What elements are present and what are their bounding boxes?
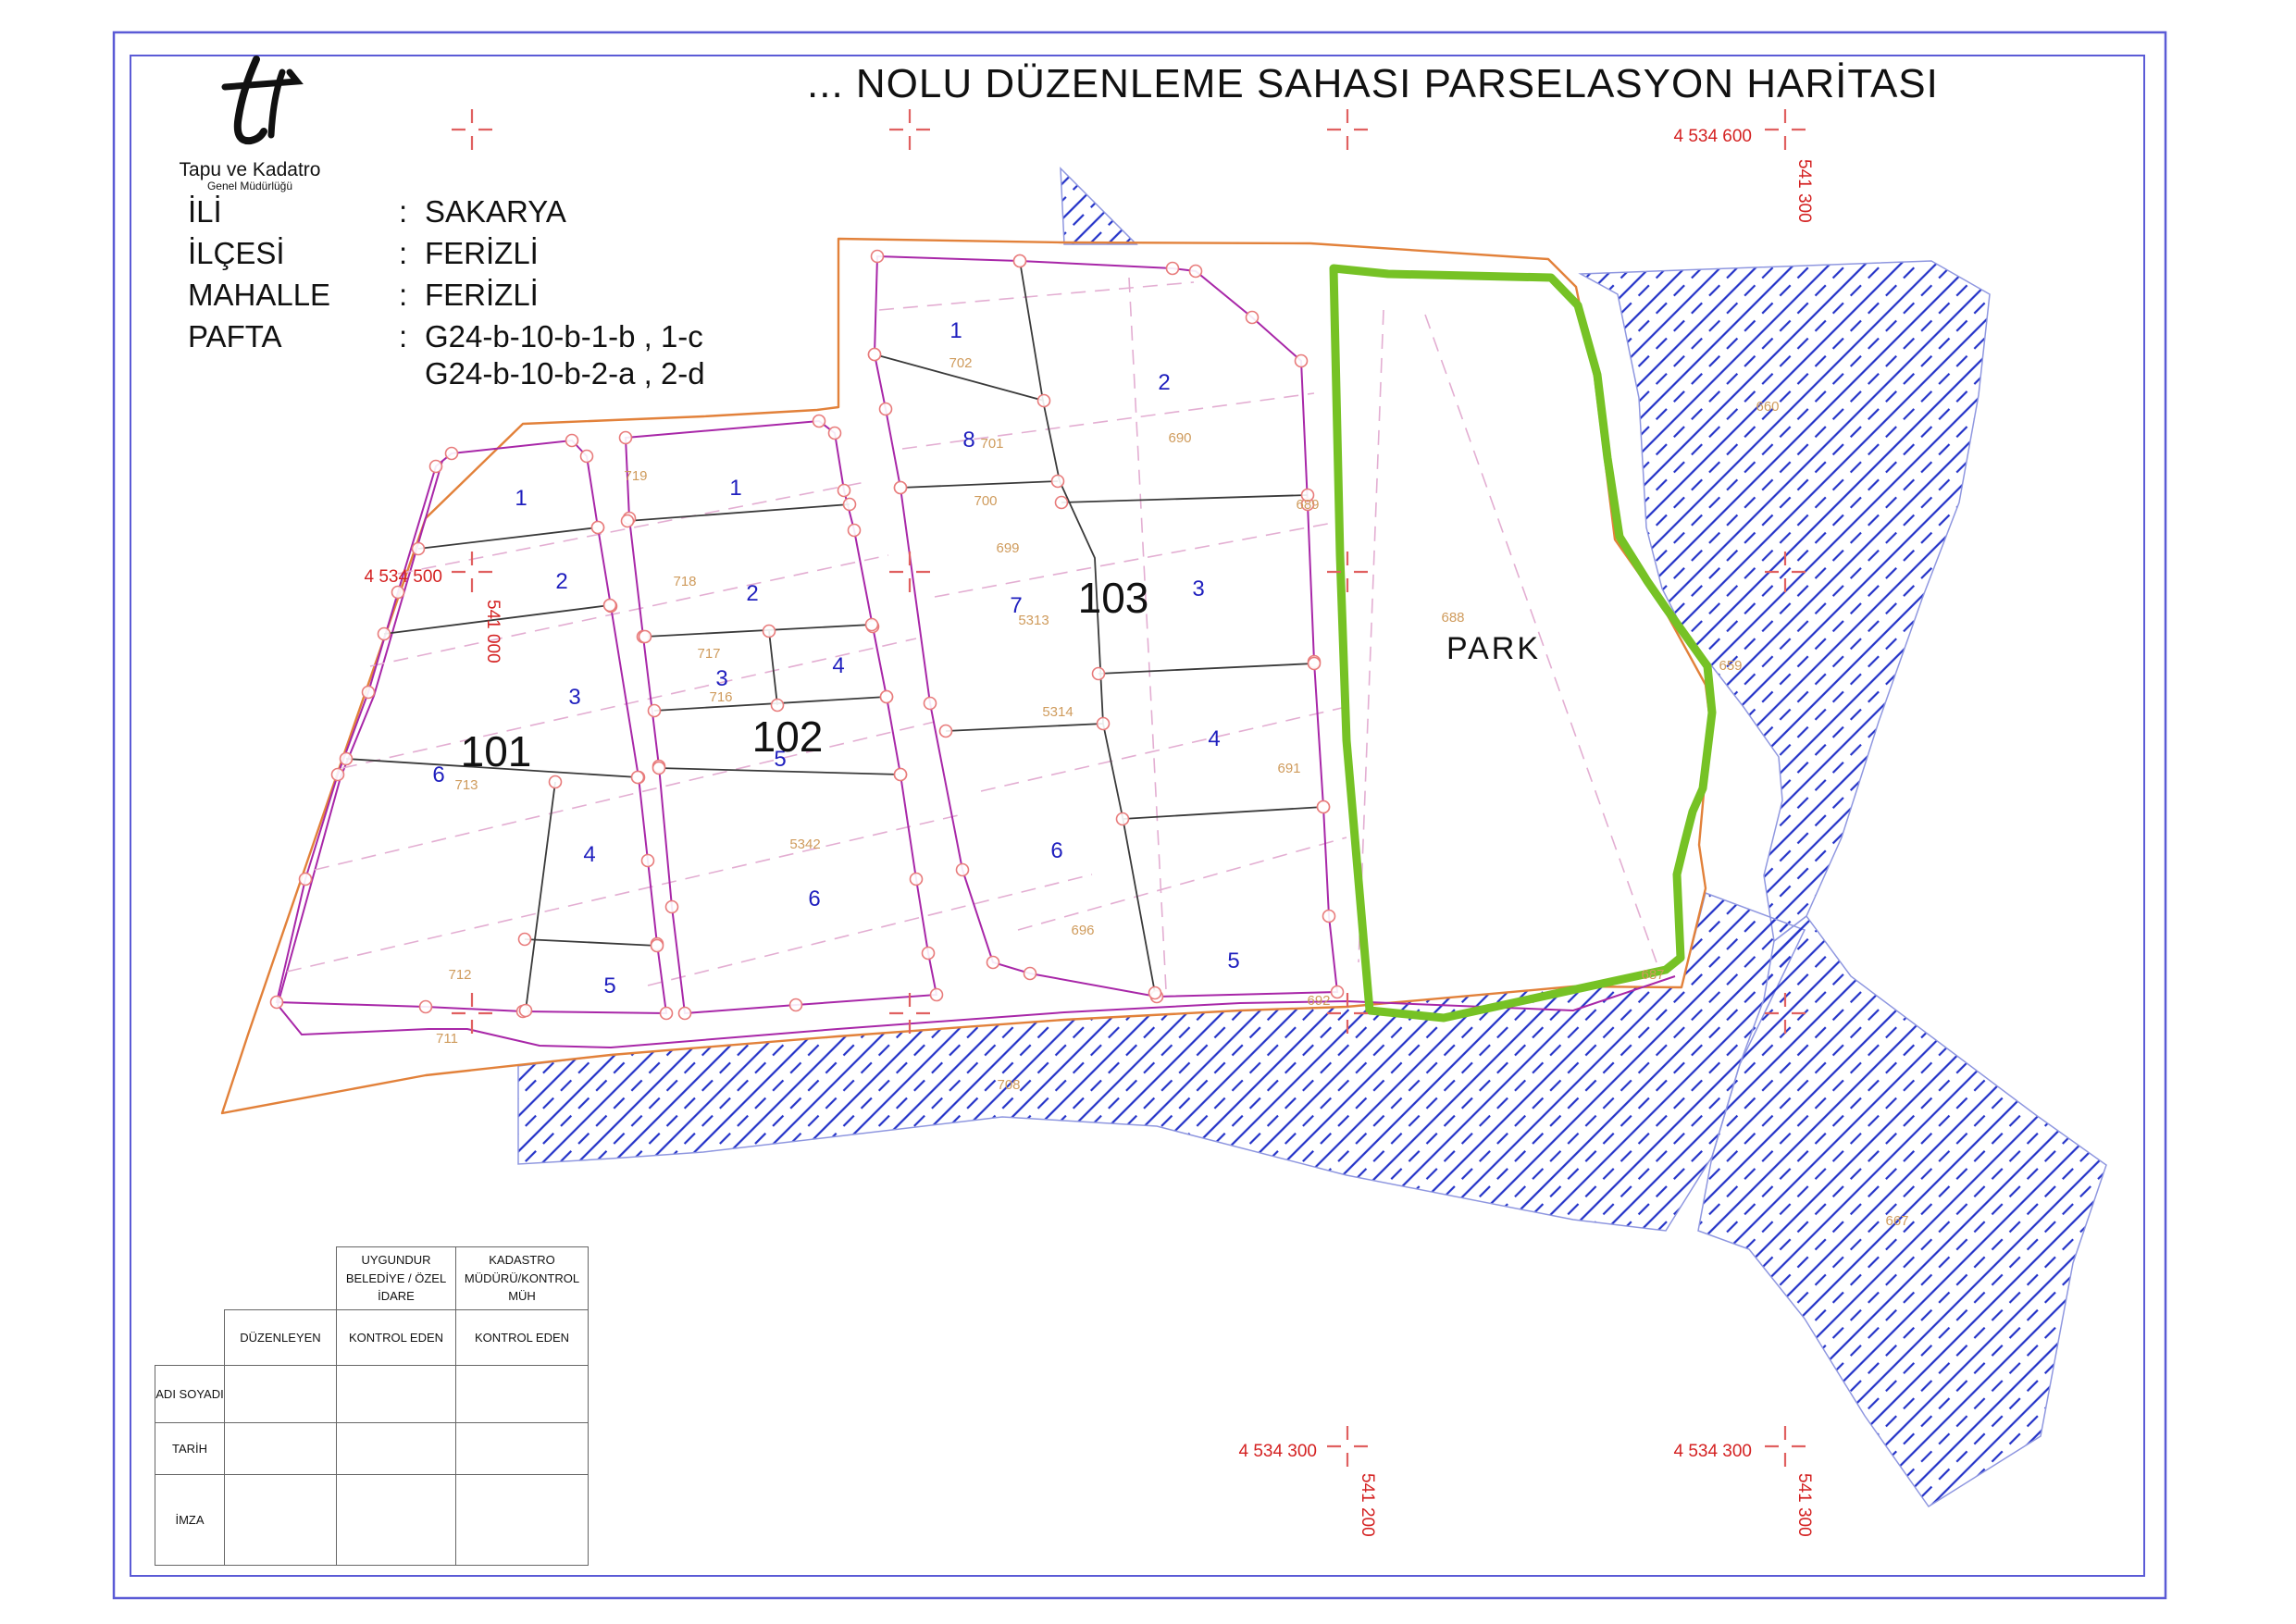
parcel-vertex-marker: [923, 948, 935, 960]
parcel-vertex-marker: [379, 628, 391, 640]
table-cell-empty: [336, 1365, 456, 1423]
parcel-vertex-marker: [1052, 476, 1064, 488]
info-separator: :: [399, 319, 425, 354]
old-parcel-number-label: 700: [974, 493, 997, 509]
block-number-label: 103: [1078, 574, 1149, 622]
table-header-kontrol-eden-1: KONTROL EDEN: [336, 1309, 456, 1366]
block-103-parcel-line: [1098, 663, 1314, 674]
parcel-vertex-marker: [592, 522, 604, 534]
info-value: SAKARYA: [425, 194, 566, 229]
old-cadastre-dashed-line: [981, 708, 1342, 791]
parcel-vertex-marker: [632, 772, 644, 784]
info-separator: :: [399, 236, 425, 271]
parcel-number-label: 5: [1227, 948, 1239, 973]
parcel-number-label: 2: [746, 581, 758, 606]
grid-cross-marker: [889, 993, 930, 1034]
old-parcel-number-label: 689: [1296, 497, 1319, 513]
block-number-label: 101: [461, 727, 532, 775]
grid-coordinate-label: 541 200: [1358, 1473, 1377, 1537]
parcel-vertex-marker: [649, 705, 661, 717]
parcel-number-label: 4: [1208, 726, 1220, 751]
table-cell-empty: [224, 1422, 337, 1475]
block-102-parcel-line: [645, 625, 872, 637]
table-header-kadastro: KADASTRO MÜDÜRÜ/KONTROL MÜH: [455, 1246, 589, 1310]
old-parcel-number-label: 708: [997, 1077, 1020, 1093]
park-area-label: PARK: [1446, 631, 1541, 666]
parcel-number-label: 4: [583, 842, 595, 867]
parcel-vertex-marker: [271, 997, 283, 1009]
grid-cross-marker: [1765, 1426, 1806, 1467]
table-header-text: UYGUNDUR: [361, 1251, 430, 1270]
parcel-vertex-marker: [763, 626, 776, 638]
parcel-vertex-marker: [679, 1008, 691, 1020]
parcel-vertex-marker: [957, 864, 969, 876]
old-parcel-number-label: 687: [1641, 967, 1664, 983]
old-parcel-number-label: 699: [996, 540, 1019, 556]
old-parcel-number-label: 717: [697, 646, 720, 662]
old-cadastre-dashed-line: [315, 722, 935, 870]
parcel-vertex-marker: [895, 482, 907, 494]
hatch-area-northeast: [1581, 261, 1990, 941]
table-header-text: BELEDİYE / ÖZEL İDARE: [337, 1270, 455, 1306]
parcel-number-label: 1: [949, 318, 962, 343]
info-label: İLÇESİ: [188, 236, 399, 271]
info-value: FERİZLİ: [425, 278, 539, 312]
parcel-vertex-marker: [1149, 987, 1161, 999]
parcel-vertex-marker: [332, 769, 344, 781]
info-row-sheet: PAFTA:G24-b-10-b-1-b , 1-c: [188, 319, 703, 354]
old-cadastre-dashed-line: [287, 814, 962, 972]
parcel-vertex-marker: [931, 989, 943, 1001]
block-103-parcel-line: [1123, 807, 1323, 819]
parcel-vertex-marker: [519, 934, 531, 946]
info-label: İLİ: [188, 194, 399, 229]
grid-coordinate-label: 4 534 300: [1238, 1442, 1317, 1461]
old-parcel-number-label: 711: [436, 1031, 458, 1047]
old-parcel-number-label: 690: [1168, 430, 1191, 446]
parcel-number-label: 1: [515, 486, 527, 511]
old-cadastre-dashed-line: [879, 282, 1194, 310]
parcel-number-label: 4: [832, 653, 844, 678]
parcel-vertex-marker: [341, 753, 353, 765]
parcel-vertex-marker: [639, 631, 652, 643]
parcel-vertex-marker: [813, 415, 825, 428]
info-value: G24-b-10-b-1-b , 1-c: [425, 319, 703, 353]
parcel-vertex-marker: [829, 428, 841, 440]
old-parcel-number-label: 716: [709, 689, 732, 705]
info-value: FERİZLİ: [425, 236, 539, 270]
old-parcel-number-label: 667: [1885, 1213, 1908, 1229]
old-parcel-number-label: 718: [673, 574, 696, 589]
parcel-number-label: 2: [1158, 370, 1170, 395]
old-parcel-number-label: 696: [1071, 923, 1094, 938]
block-103-outline: [875, 256, 1337, 997]
parcel-vertex-marker: [581, 451, 593, 463]
parcel-vertex-marker: [1309, 658, 1321, 670]
map-sheet: 1236457137127111011234567187177165342102…: [0, 0, 2296, 1624]
parcel-vertex-marker: [1098, 718, 1110, 730]
table-cell-empty: [455, 1474, 589, 1566]
parcel-number-label: 2: [555, 569, 567, 594]
parcel-vertex-marker: [772, 700, 784, 712]
parcel-vertex-marker: [1056, 497, 1068, 509]
parcel-vertex-marker: [790, 999, 802, 1011]
parcel-number-label: 8: [962, 428, 974, 452]
old-cadastre-dashed-line: [1359, 310, 1384, 962]
old-parcel-number-label: 692: [1307, 993, 1330, 1009]
block-102-parcel-line: [654, 697, 887, 711]
parcel-vertex-marker: [895, 769, 907, 781]
old-cadastre-dashed-line: [370, 555, 888, 666]
grid-coordinate-label: 541 000: [483, 600, 503, 663]
table-cell-empty: [224, 1474, 337, 1566]
parcel-vertex-marker: [1038, 395, 1050, 407]
info-row-district: İLÇESİ:FERİZLİ: [188, 236, 539, 271]
block-102-parcel-line: [769, 631, 777, 705]
grid-cross-marker: [1765, 109, 1806, 150]
table-cell-empty: [336, 1422, 456, 1475]
grid-cross-marker: [452, 552, 492, 592]
info-label: MAHALLE: [188, 278, 399, 313]
old-cadastre-dashed-line: [342, 638, 916, 768]
grid-coordinate-label: 541 300: [1794, 1473, 1814, 1537]
parcel-vertex-marker: [300, 874, 312, 886]
parcel-vertex-marker: [430, 461, 442, 473]
old-parcel-number-label: 691: [1277, 761, 1300, 776]
parcel-vertex-marker: [622, 515, 634, 527]
parcel-number-label: 1: [729, 476, 741, 501]
parcel-vertex-marker: [866, 619, 878, 631]
parcel-vertex-marker: [653, 762, 665, 775]
parcel-vertex-marker: [1093, 668, 1105, 680]
table-cell-empty: [336, 1474, 456, 1566]
logo-organization-name: Tapu ve Kadatro: [153, 159, 347, 181]
grid-cross-marker: [1327, 552, 1368, 592]
parcel-vertex-marker: [987, 957, 999, 969]
info-row-province: İLİ:SAKARYA: [188, 194, 566, 229]
grid-cross-marker: [889, 552, 930, 592]
parcel-vertex-marker: [520, 1005, 532, 1017]
table-header-text: MÜDÜRÜ/KONTROL MÜH: [456, 1270, 588, 1306]
old-cadastre-dashed-line: [1018, 837, 1347, 930]
old-parcel-number-label: 702: [949, 355, 972, 371]
parcel-vertex-marker: [652, 940, 664, 952]
block-103-parcel-line: [1061, 495, 1308, 502]
hatch-band-south: [518, 893, 1805, 1231]
block-number-label: 102: [752, 713, 824, 761]
table-header-uygundur: UYGUNDUR BELEDİYE / ÖZEL İDARE: [336, 1246, 456, 1310]
parcel-number-label: 3: [568, 685, 580, 710]
parcel-vertex-marker: [925, 698, 937, 710]
old-parcel-number-label: 719: [624, 468, 647, 484]
info-value: G24-b-10-b-2-a , 2-d: [425, 356, 705, 391]
grid-cross-marker: [452, 993, 492, 1034]
parcel-vertex-marker: [849, 525, 861, 537]
block-103-parcel-line: [900, 481, 1058, 488]
table-cell-empty: [224, 1365, 337, 1423]
block-103-parcel-line: [946, 724, 1103, 731]
table-row-label-imza: İMZA: [155, 1474, 225, 1566]
parcel-vertex-marker: [661, 1008, 673, 1020]
parcel-vertex-marker: [1024, 968, 1036, 980]
table-row-label-tarih: TARİH: [155, 1422, 225, 1475]
info-row-sheet-2: G24-b-10-b-2-a , 2-d: [188, 356, 705, 391]
parcel-vertex-marker: [1247, 312, 1259, 324]
parcel-vertex-marker: [880, 403, 892, 415]
old-parcel-number-label: 712: [448, 967, 471, 983]
parcel-vertex-marker: [838, 485, 850, 497]
parcel-vertex-marker: [666, 901, 678, 913]
parcel-number-label: 3: [715, 666, 727, 691]
info-separator: :: [399, 194, 425, 229]
parcel-vertex-marker: [881, 691, 893, 703]
parcel-vertex-marker: [566, 435, 578, 447]
parcel-vertex-marker: [1296, 355, 1308, 367]
grid-cross-marker: [452, 109, 492, 150]
parcel-vertex-marker: [911, 874, 923, 886]
old-parcel-number-label: 5314: [1042, 704, 1073, 720]
grid-coordinate-label: 541 300: [1794, 159, 1814, 223]
parcel-vertex-marker: [1167, 263, 1179, 275]
block-101-parcel-line: [418, 527, 598, 549]
parcel-number-label: 6: [808, 886, 820, 911]
parcel-number-label: 6: [1050, 838, 1062, 863]
grid-coordinate-label: 4 534 300: [1673, 1442, 1752, 1461]
parcel-vertex-marker: [844, 499, 856, 511]
old-parcel-number-label: 659: [1719, 658, 1742, 674]
table-header-text: KADASTRO: [489, 1251, 555, 1270]
parcel-vertex-marker: [604, 600, 616, 612]
old-parcel-number-label: 5313: [1018, 613, 1049, 628]
old-parcel-number-label: 688: [1441, 610, 1464, 626]
logo-block: Tapu ve Kadatro Genel Müdürlüğü: [153, 48, 347, 192]
parcel-vertex-marker: [420, 1001, 432, 1013]
grid-coordinate-label: 4 534 600: [1673, 127, 1752, 146]
grid-cross-marker: [889, 109, 930, 150]
parcel-vertex-marker: [446, 448, 458, 460]
block-101-parcel-line: [525, 939, 657, 946]
table-cell-empty: [455, 1422, 589, 1475]
info-separator: :: [399, 278, 425, 313]
block-101-parcel-line: [526, 782, 555, 1010]
parcel-vertex-marker: [1014, 255, 1026, 267]
old-parcel-number-label: 660: [1756, 399, 1779, 415]
parcel-number-label: 5: [603, 973, 615, 998]
parcel-vertex-marker: [869, 349, 881, 361]
old-parcel-number-label: 713: [454, 777, 478, 793]
page-title: ... NOLU DÜZENLEME SAHASI PARSELASYON HA…: [807, 61, 1880, 107]
parcel-vertex-marker: [620, 432, 632, 444]
parcel-vertex-marker: [940, 725, 952, 738]
table-header-kontrol-eden-2: KONTROL EDEN: [455, 1309, 589, 1366]
parcel-vertex-marker: [363, 687, 375, 699]
parcel-vertex-marker: [1323, 911, 1335, 923]
old-parcel-number-label: 5342: [789, 837, 820, 852]
grid-coordinate-label: 4 534 500: [364, 567, 442, 587]
parcel-vertex-marker: [872, 251, 884, 263]
parcel-vertex-marker: [413, 543, 425, 555]
parcel-vertex-marker: [1332, 986, 1344, 998]
parcel-vertex-marker: [642, 855, 654, 867]
table-cell-empty: [455, 1365, 589, 1423]
info-row-neighbourhood: MAHALLE:FERİZLİ: [188, 278, 539, 313]
grid-cross-marker: [1327, 109, 1368, 150]
table-row-label-adi-soyadi: ADI SOYADI: [155, 1365, 225, 1423]
logo-organization-subtitle: Genel Müdürlüğü: [153, 180, 347, 192]
table-header-duzenleyen: DÜZENLEYEN: [224, 1309, 337, 1366]
parcel-vertex-marker: [392, 587, 404, 599]
info-label: PAFTA: [188, 319, 399, 354]
parcel-number-label: 6: [432, 762, 444, 787]
parcel-vertex-marker: [550, 776, 562, 788]
hatch-triangle-top: [1061, 168, 1136, 244]
old-parcel-number-label: 701: [980, 436, 1003, 452]
grid-cross-marker: [1327, 1426, 1368, 1467]
parcel-vertex-marker: [1190, 266, 1202, 278]
parcel-vertex-marker: [1117, 813, 1129, 825]
parcel-number-label: 3: [1192, 576, 1204, 601]
parcel-vertex-marker: [1318, 801, 1330, 813]
